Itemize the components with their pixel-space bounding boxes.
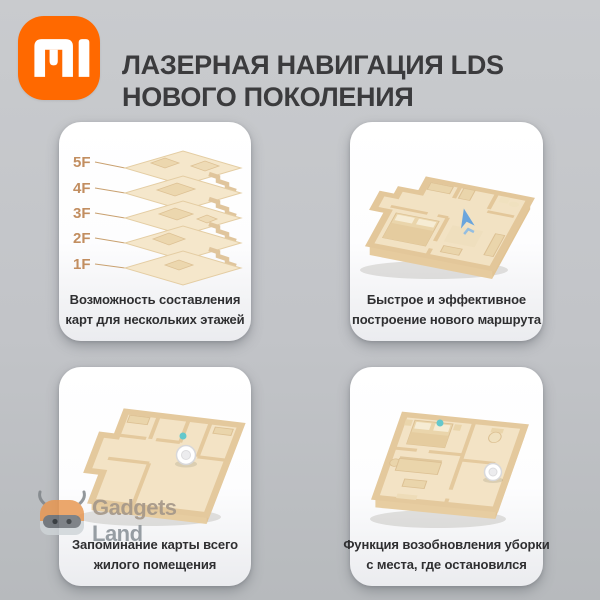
floor-label: 5F — [73, 154, 91, 171]
floor-label: 2F — [73, 230, 91, 247]
mi-logo-icon — [18, 16, 100, 100]
card-caption: Функция возобновления уборки с места, гд… — [343, 535, 549, 575]
robot-vacuum-icon — [483, 464, 503, 484]
multi-floor-stack-illustration: 5F 4F 3F 2F 1F — [59, 122, 251, 294]
feature-card-map-memory: Запоминание карты всего жилого помещения — [59, 367, 251, 586]
page-title: ЛАЗЕРНАЯ НАВИГАЦИЯ LDS НОВОГО ПОКОЛЕНИЯ — [122, 49, 504, 113]
card-caption: Возможность составления карт для несколь… — [65, 290, 244, 330]
feature-card-fast-route: Быстрое и эффективное построение нового … — [350, 122, 543, 341]
watermark-text: Gadgets Land — [92, 489, 177, 547]
location-dot-icon — [180, 433, 187, 440]
page-title-line2: НОВОГО ПОКОЛЕНИЯ — [122, 81, 504, 113]
promo-page: ЛАЗЕРНАЯ НАВИГАЦИЯ LDS НОВОГО ПОКОЛЕНИЯ — [0, 0, 600, 600]
floor-plan-route-illustration — [350, 122, 543, 294]
xiaomi-logo — [18, 16, 100, 100]
card-caption: Быстрое и эффективное построение нового … — [352, 290, 541, 330]
floor-label: 4F — [73, 180, 91, 197]
location-dot-icon — [437, 420, 444, 427]
feature-card-multi-floor-maps: 5F 4F 3F 2F 1F Возможность составления к… — [59, 122, 251, 341]
feature-card-resume-cleaning: Функция возобновления уборки с места, гд… — [350, 367, 543, 586]
page-title-line1: ЛАЗЕРНАЯ НАВИГАЦИЯ LDS — [122, 49, 504, 81]
robot-vacuum-icon — [175, 446, 197, 468]
floor-label: 3F — [73, 205, 91, 222]
floor-label: 1F — [73, 256, 91, 273]
robot-mascot-icon — [34, 489, 90, 541]
gadgets-land-watermark: Gadgets Land — [34, 489, 177, 547]
floor-plan-resume-illustration — [350, 367, 543, 539]
